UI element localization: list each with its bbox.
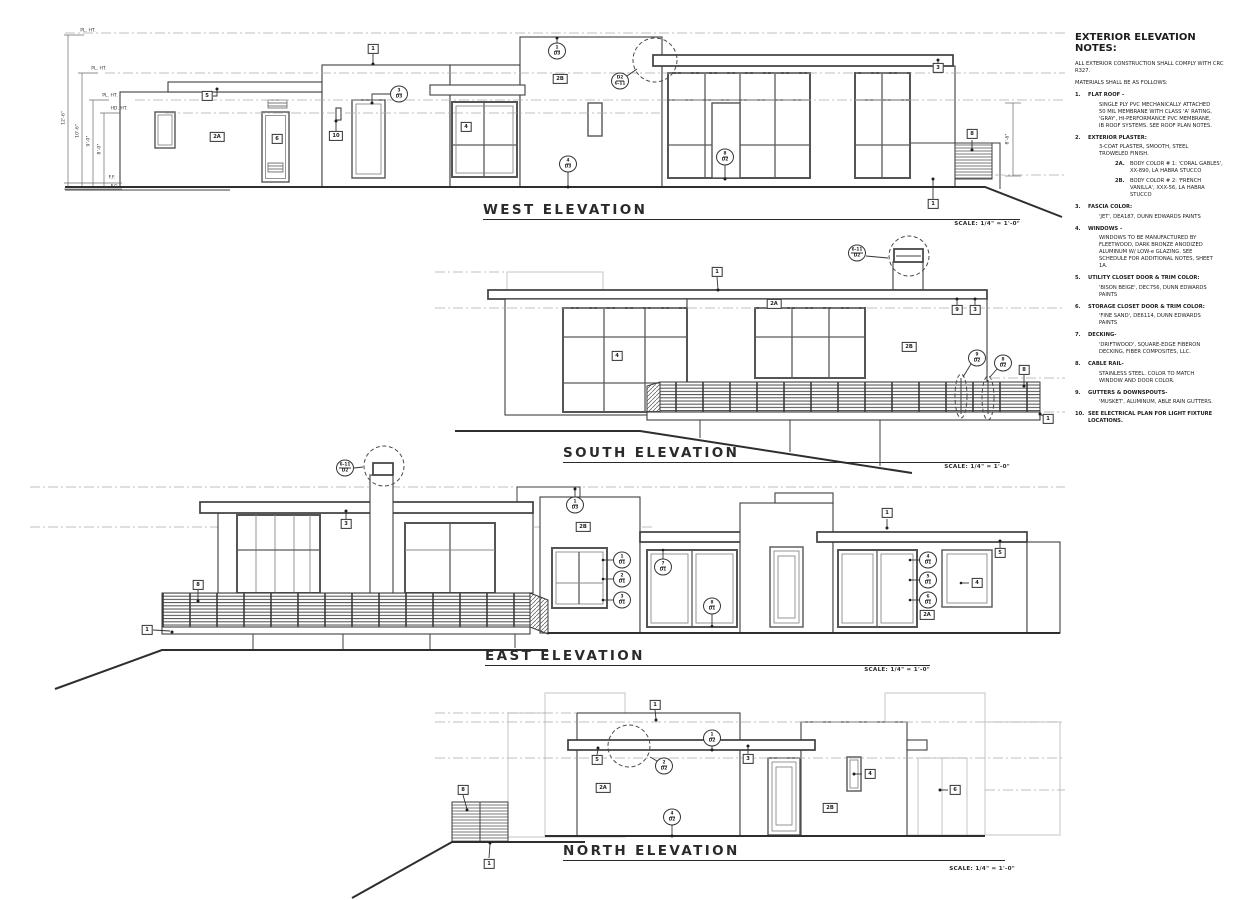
- keynote-tag: 4: [865, 769, 876, 779]
- west-scale-label: SCALE: 1/4" = 1'-0": [872, 221, 1020, 227]
- keynote-tag: 1: [712, 267, 723, 277]
- note-item-body: SINGLE PLY PVC MECHANICALLY ATTACHED 50 …: [1099, 102, 1217, 130]
- detail-callout: 2D1: [613, 571, 631, 588]
- note-item-number: 2.: [1075, 135, 1088, 142]
- dimension-label: 9'-0": [87, 136, 92, 147]
- detail-callout: 4D1: [919, 552, 937, 569]
- dimension-label: PL. HT.: [80, 29, 95, 34]
- keynote-tag: 1: [928, 199, 939, 209]
- note-item: 7.DECKING-'DRIFTWOOD', SQUARE-EDGE FIBER…: [1075, 332, 1239, 356]
- keynote-tag: 3: [341, 519, 352, 529]
- note-item-number: 4.: [1075, 226, 1088, 233]
- note-item-title: UTILITY CLOSET DOOR & TRIM COLOR:: [1088, 275, 1199, 282]
- notes-intro-line: MATERIALS SHALL BE AS FOLLOWS:: [1075, 80, 1239, 87]
- note-item-body: 3-COAT PLASTER, SMOOTH, STEEL TROWELED F…: [1099, 144, 1217, 158]
- south-elevation-title: SOUTH ELEVATION: [563, 445, 1000, 463]
- note-item-title: DECKING-: [1088, 332, 1116, 339]
- elevation-sheet: WEST ELEVATION SCALE: 1/4" = 1'-0" SOUTH…: [0, 0, 1239, 900]
- keynote-tag: 1: [1043, 414, 1054, 424]
- detail-callout: 9D2: [968, 350, 986, 367]
- note-item-title: SEE ELECTRICAL PLAN FOR LIGHT FIXTURE LO…: [1088, 411, 1239, 425]
- dimension-label: PL. HT.: [91, 67, 106, 72]
- note-item-body: 'FINE SAND', DE6114, DUNN EDWARDS PAINTS: [1099, 313, 1217, 327]
- keynote-tag: 1: [484, 859, 495, 869]
- note-item-body: 'DRIFTWOOD', SQUARE-EDGE FIBERON DECKING…: [1099, 342, 1217, 356]
- keynote-tag: 6: [950, 785, 961, 795]
- note-item-number: 7.: [1075, 332, 1088, 339]
- note-subitem-text: BODY COLOR # 1: 'CORAL GABLES', XX-890, …: [1130, 161, 1225, 175]
- keynote-tag: 4: [972, 578, 983, 588]
- note-item: 1.FLAT ROOF -SINGLE PLY PVC MECHANICALLY…: [1075, 92, 1239, 130]
- note-item-number: 1.: [1075, 92, 1088, 99]
- detail-callout: 2D2: [655, 758, 673, 775]
- note-item-number: 10.: [1075, 411, 1088, 425]
- dimension-label: 8'-6": [1006, 134, 1011, 145]
- note-item-body: WINDOWS TO BE MANUFACTURED BY FLEETWOOD,…: [1099, 235, 1217, 270]
- note-item: 2.EXTERIOR PLASTER:3-COAT PLASTER, SMOOT…: [1075, 135, 1239, 200]
- note-item-number: 6.: [1075, 304, 1088, 311]
- note-item-body: 'MUSKET', ALUMINUM, ABLE RAIN GUTTERS.: [1099, 399, 1217, 406]
- detail-callout: 1D2: [703, 730, 721, 747]
- keynote-tag: 4: [612, 351, 623, 361]
- note-item-title: EXTERIOR PLASTER:: [1088, 135, 1147, 142]
- west-elevation-drawing: [64, 33, 1065, 217]
- note-item-body: STAINLESS STEEL. COLOR TO MATCH WINDOW A…: [1099, 371, 1217, 385]
- note-subitem-text: BODY COLOR # 2: 'FRENCH VANILLA', XXX-56…: [1130, 178, 1225, 199]
- note-subitem: 2B.BODY COLOR # 2: 'FRENCH VANILLA', XXX…: [1115, 178, 1225, 199]
- note-item-title: FLAT ROOF -: [1088, 92, 1124, 99]
- note-subitem: 2A.BODY COLOR # 1: 'CORAL GABLES', XX-89…: [1115, 161, 1225, 175]
- detail-callout: 8D2: [716, 149, 734, 166]
- note-item: 3.FASCIA COLOR:'JET', DEA187, DUNN EDWAR…: [1075, 204, 1239, 221]
- dimension-label: 8'-0": [98, 144, 103, 155]
- keynote-tag: 3: [970, 305, 981, 315]
- note-item: 6.STORAGE CLOSET DOOR & TRIM COLOR:'FINE…: [1075, 304, 1239, 328]
- keynote-tag: 2A: [210, 132, 225, 142]
- note-item: 8.CABLE RAIL-STAINLESS STEEL. COLOR TO M…: [1075, 361, 1239, 385]
- north-scale-label: SCALE: 1/4" = 1'-0": [873, 866, 1015, 872]
- keynote-tag: 1: [882, 508, 893, 518]
- south-elevation-title-text: SOUTH ELEVATION: [563, 447, 739, 463]
- keynote-tag: 6: [272, 134, 283, 144]
- note-subitem-number: 2A.: [1115, 161, 1130, 175]
- keynote-tag: 4: [461, 122, 472, 132]
- detail-callout: 1D3: [566, 497, 584, 514]
- note-item-body: 'BISON BEIGE', DEC756, DUNN EDWARDS PAIN…: [1099, 285, 1217, 299]
- dimension-label: F.F.: [109, 176, 116, 181]
- west-elevation-title-text: WEST ELEVATION: [483, 204, 647, 220]
- keynote-tag: 2B: [902, 342, 917, 352]
- detail-callout: 4D3: [559, 156, 577, 173]
- keynote-tag: 5: [995, 548, 1006, 558]
- detail-callout: 6-11D2: [848, 245, 866, 262]
- detail-callout: 7D1: [654, 559, 672, 576]
- note-item: 9.GUTTERS & DOWNSPOUTS-'MUSKET', ALUMINU…: [1075, 390, 1239, 407]
- keynote-tag: 3: [743, 754, 754, 764]
- notes-body: ALL EXTERIOR CONSTRUCTION SHALL COMPLY W…: [1075, 61, 1239, 425]
- north-elevation-title-text: NORTH ELEVATION: [563, 845, 740, 861]
- detail-callout: 8D2: [994, 355, 1012, 372]
- west-elevation-title: WEST ELEVATION: [483, 202, 1020, 220]
- detail-callout: 6-11D2: [336, 460, 354, 477]
- dimension-label: PL. HT.: [102, 94, 117, 99]
- keynote-tag: 2A: [767, 299, 782, 309]
- keynote-tag: 5: [592, 755, 603, 765]
- keynote-tag: 5: [202, 91, 213, 101]
- east-elevation-title: EAST ELEVATION: [485, 648, 930, 666]
- keynote-tag: 2B: [576, 522, 591, 532]
- note-subitem-number: 2B.: [1115, 178, 1130, 199]
- dimension-label: 12'-6": [62, 111, 67, 125]
- detail-callout: 5D1: [919, 572, 937, 589]
- detail-callout: 1D1: [613, 552, 631, 569]
- dimension-label: HD. HT.: [110, 107, 127, 112]
- dimension-label: F.G.: [111, 185, 119, 190]
- north-elevation-title: NORTH ELEVATION: [563, 843, 1005, 861]
- note-item-number: 5.: [1075, 275, 1088, 282]
- detail-callout: 4D2: [663, 809, 681, 826]
- detail-callout: 1D3: [548, 43, 566, 60]
- detail-callout: 8D1: [703, 598, 721, 615]
- note-item-number: 9.: [1075, 390, 1088, 397]
- keynote-tag: 8: [458, 785, 469, 795]
- keynote-tag: 8: [1019, 365, 1030, 375]
- note-item-number: 3.: [1075, 204, 1088, 211]
- note-item-title: FASCIA COLOR:: [1088, 204, 1132, 211]
- south-scale-label: SCALE: 1/4" = 1'-0": [860, 464, 1010, 470]
- note-item-number: 8.: [1075, 361, 1088, 368]
- note-item: 10.SEE ELECTRICAL PLAN FOR LIGHT FIXTURE…: [1075, 411, 1239, 425]
- keynote-tag: 1: [368, 44, 379, 54]
- detail-callout: D26-11: [611, 73, 629, 90]
- notes-intro-line: ALL EXTERIOR CONSTRUCTION SHALL COMPLY W…: [1075, 61, 1239, 75]
- keynote-tag: 1: [650, 700, 661, 710]
- keynote-tag: 3: [933, 63, 944, 73]
- detail-callout: 3D1: [613, 592, 631, 609]
- note-item-title: CABLE RAIL-: [1088, 361, 1124, 368]
- keynote-tag: 10: [329, 131, 343, 141]
- note-item-title: WINDOWS -: [1088, 226, 1122, 233]
- keynote-tag: 2A: [596, 783, 611, 793]
- note-item: 5.UTILITY CLOSET DOOR & TRIM COLOR:'BISO…: [1075, 275, 1239, 299]
- keynote-tag: 8: [193, 580, 204, 590]
- note-item: 4.WINDOWS -WINDOWS TO BE MANUFACTURED BY…: [1075, 226, 1239, 271]
- keynote-tag: 1: [142, 625, 153, 635]
- note-item-title: GUTTERS & DOWNSPOUTS-: [1088, 390, 1167, 397]
- detail-callout: 3D3: [390, 86, 408, 103]
- east-scale-label: SCALE: 1/4" = 1'-0": [788, 667, 930, 673]
- dimension-label: 10'-6": [76, 124, 81, 138]
- keynote-tag: 2B: [823, 803, 838, 813]
- notes-heading: EXTERIOR ELEVATION NOTES:: [1075, 32, 1239, 54]
- detail-callout: 6D1: [919, 592, 937, 609]
- keynote-tag: 2B: [553, 74, 568, 84]
- keynote-tag: 2A: [920, 610, 935, 620]
- east-elevation-title-text: EAST ELEVATION: [485, 650, 645, 666]
- exterior-elevation-notes: EXTERIOR ELEVATION NOTES: ALL EXTERIOR C…: [1075, 32, 1239, 430]
- note-item-title: STORAGE CLOSET DOOR & TRIM COLOR:: [1088, 304, 1205, 311]
- keynote-tag: 8: [967, 129, 978, 139]
- note-item-body: 'JET', DEA187, DUNN EDWARDS PAINTS: [1099, 214, 1217, 221]
- keynote-tag: 9: [952, 305, 963, 315]
